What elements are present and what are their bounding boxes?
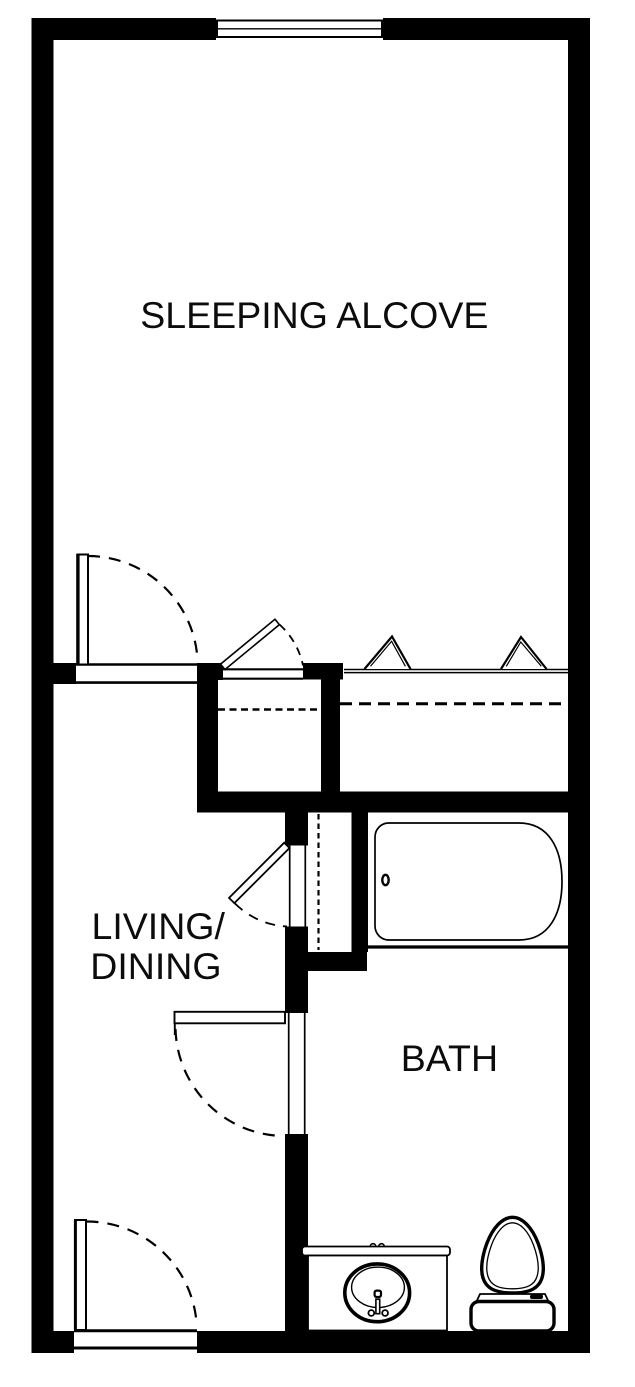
svg-text:DINING: DINING xyxy=(90,945,221,987)
svg-text:SLEEPING ALCOVE: SLEEPING ALCOVE xyxy=(140,294,488,336)
svg-text:LIVING/: LIVING/ xyxy=(92,905,226,947)
svg-text:BATH: BATH xyxy=(401,1037,498,1079)
